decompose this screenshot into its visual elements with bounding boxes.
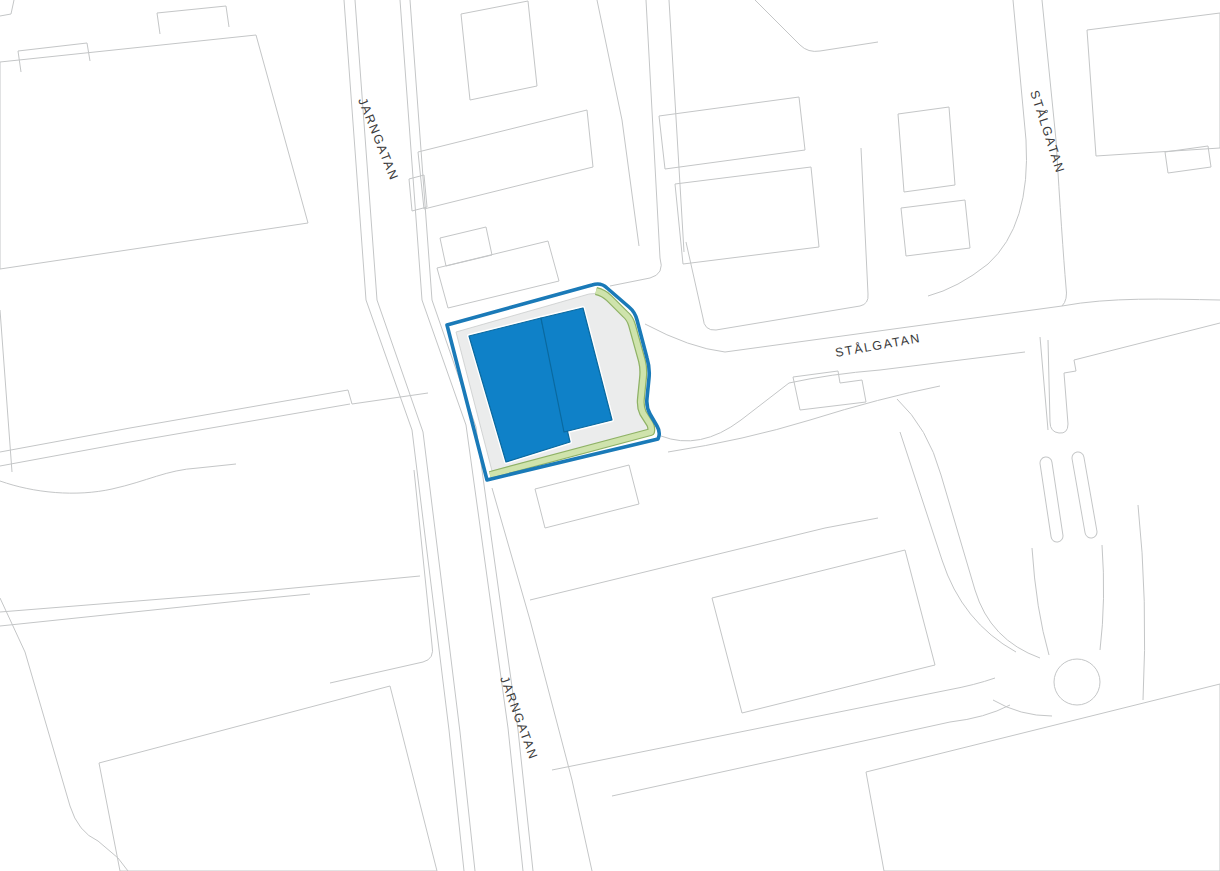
roundabout [1054, 659, 1100, 705]
map-canvas[interactable]: JARNGATANJARNGATANSTÅLGATANSTÅLGATAN [0, 0, 1220, 871]
building-outline-large-west [0, 35, 308, 269]
parcel-boundary-roundabout-west [900, 432, 1016, 652]
traffic-island-east [1078, 458, 1091, 532]
street-label-jarngatan-south: JARNGATAN [497, 674, 540, 762]
parcel-boundary-east-center [668, 386, 940, 452]
building-outline-south-of-stalgatan [793, 371, 866, 410]
road-line-bottom-right [1138, 505, 1145, 700]
building-outline-small-north [440, 227, 492, 266]
building-outline-ne-2 [901, 200, 970, 256]
parcel-boundary-west-b [0, 404, 350, 466]
building-outline-south-center [712, 550, 935, 713]
parcel-boundary-southwest-b [0, 594, 310, 626]
street-label-jarngatan-north: JARNGATAN [355, 96, 401, 183]
building-outline-southwest [99, 686, 437, 871]
building-outline-ne-1 [898, 107, 955, 192]
road-edge-below-roundabout [993, 700, 1052, 716]
parcel-line-right-a [1040, 337, 1048, 430]
building-outline-north-block-2 [675, 167, 819, 264]
road-edge-curve-center [610, 258, 661, 286]
parcel-boundary-southwest-a [0, 576, 420, 612]
lane-line-center-a [646, 0, 660, 258]
parcel-boundary-southwest-c [0, 598, 128, 871]
stalgatan-south-edge [661, 352, 1025, 441]
building-outline-north-block-1 [659, 97, 805, 169]
building-outline-top-center-1 [461, 1, 537, 100]
parcel-boundary-west-a [0, 390, 428, 452]
building-outline-top-right [1087, 13, 1220, 156]
corner-strip-line [0, 0, 14, 16]
parcel-boundary-north-block [686, 148, 868, 330]
street-label-stalgatan-east: STÅLGATAN [1027, 88, 1068, 175]
boundary-diagonal-top [755, 0, 878, 51]
building-outline-below-parcel [535, 465, 639, 528]
parcel-strip-right [1048, 323, 1220, 433]
road-edge-north-approach-east [1100, 545, 1104, 650]
traffic-island-west [1046, 463, 1057, 536]
road-edge-lower-b [612, 705, 1010, 796]
building-outline-bottom-right [866, 684, 1220, 871]
building-annex-west-1 [18, 43, 90, 72]
building-annex-west-2 [157, 6, 229, 34]
parcel-boundary-top-center [597, 0, 639, 246]
road-edge-branch-southeast [897, 399, 1040, 658]
parcel-line-west-edge [0, 310, 12, 472]
street-label-stalgatan-center: STÅLGATAN [834, 330, 922, 360]
stream-boundary-line [0, 464, 236, 493]
site-plan-map[interactable]: JARNGATANJARNGATANSTÅLGATANSTÅLGATAN [0, 0, 1220, 871]
lane-line-center-b [669, 0, 684, 252]
building-outline-top-center-2 [418, 110, 593, 209]
road-edge-north-approach-west [1032, 548, 1049, 655]
road-edge-right [1062, 299, 1220, 306]
parcel-boundary-south-center [530, 518, 878, 600]
